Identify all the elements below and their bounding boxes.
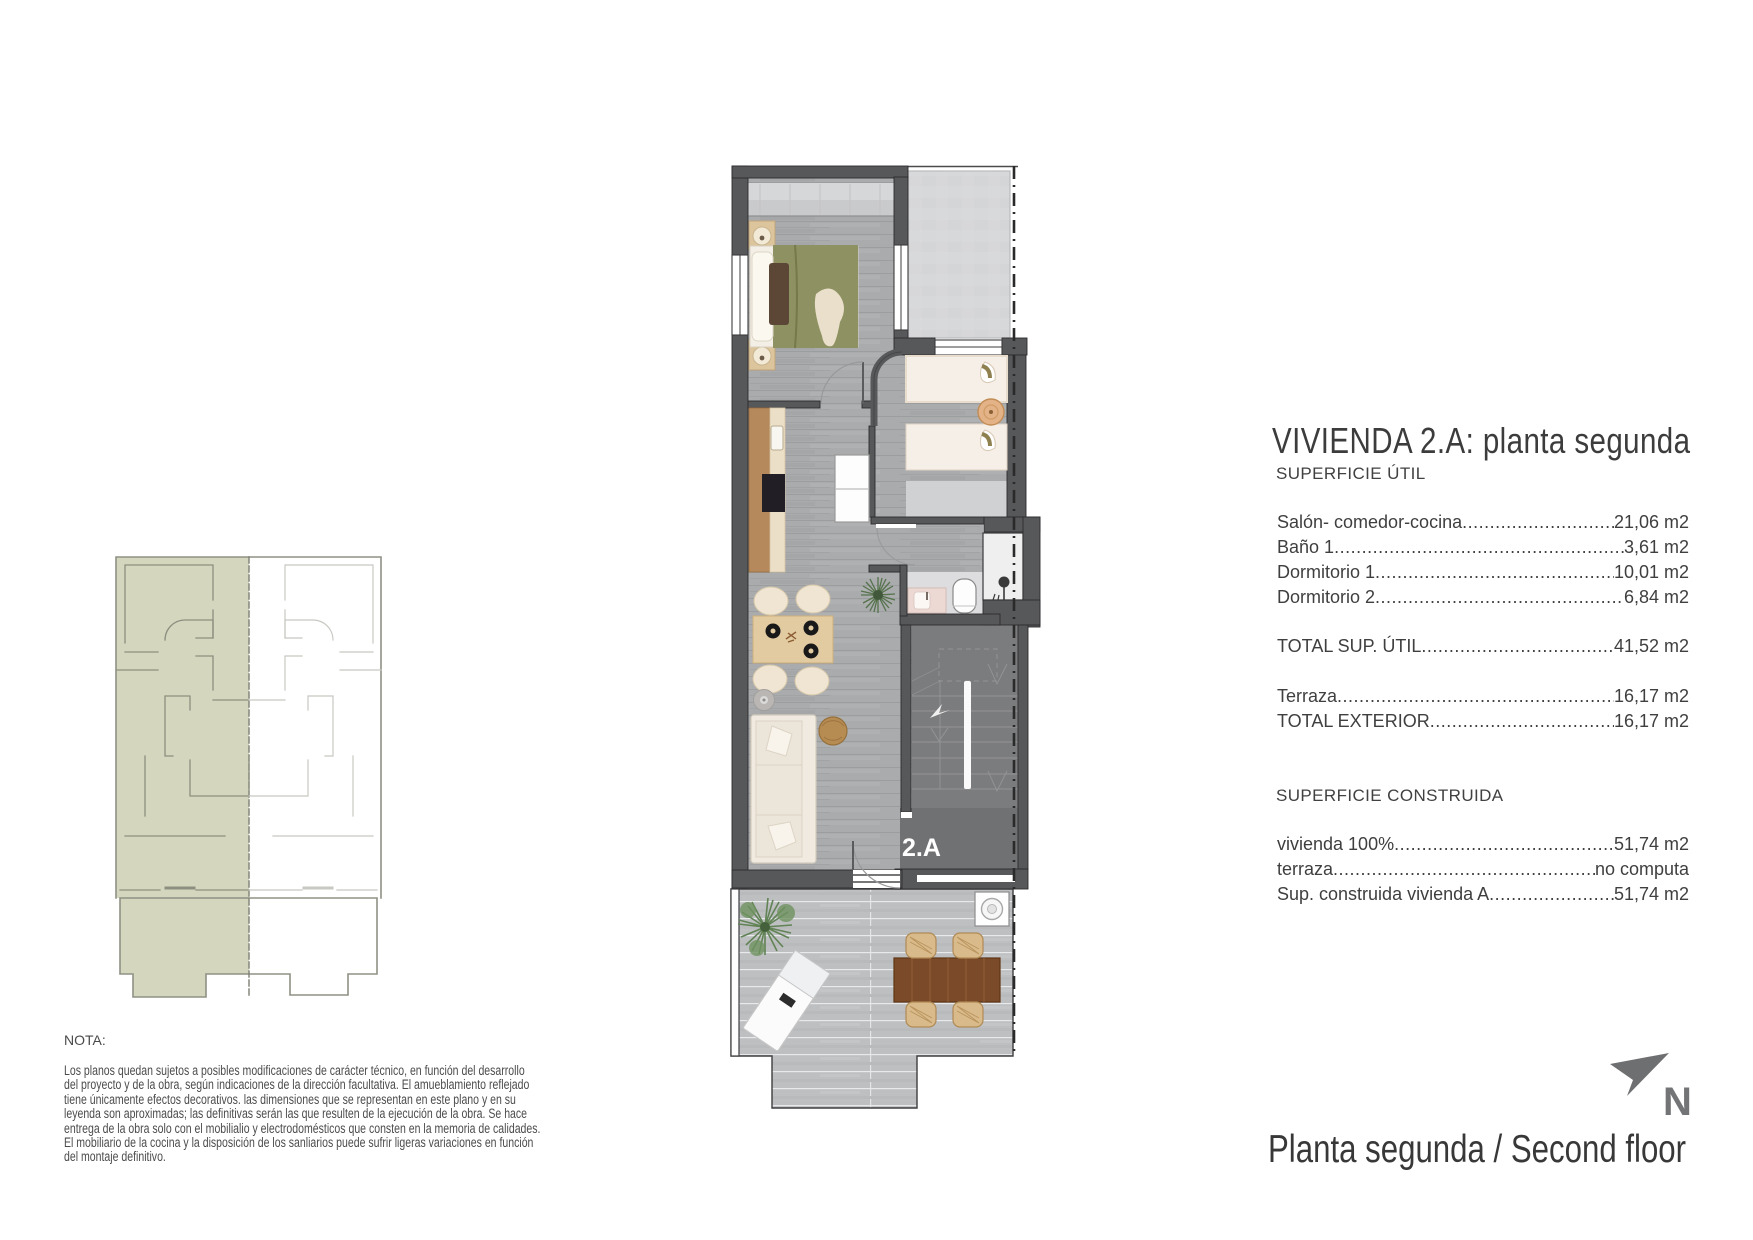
svg-text:2.A: 2.A — [902, 834, 941, 862]
